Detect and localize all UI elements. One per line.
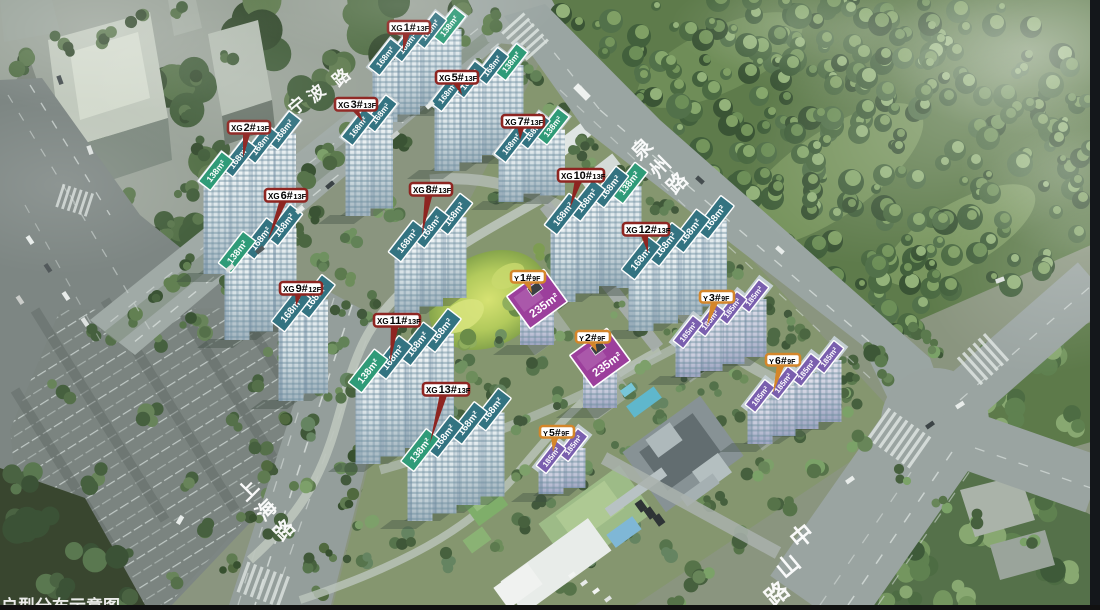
svg-text:XG7#13F: XG7#13F: [505, 116, 544, 128]
svg-text:XG6#13F: XG6#13F: [268, 190, 307, 202]
svg-text:XG12#13F: XG12#13F: [626, 224, 671, 236]
svg-text:XG13#13F: XG13#13F: [426, 384, 471, 396]
svg-text:户型分布示意图: 户型分布示意图: [1, 596, 120, 605]
svg-text:XG10#13F: XG10#13F: [561, 170, 606, 182]
svg-text:XG8#13F: XG8#13F: [413, 184, 452, 196]
svg-text:XG5#13F: XG5#13F: [439, 72, 478, 84]
svg-text:XG11#13F: XG11#13F: [377, 315, 421, 327]
svg-text:XG9#12F: XG9#12F: [283, 283, 322, 295]
